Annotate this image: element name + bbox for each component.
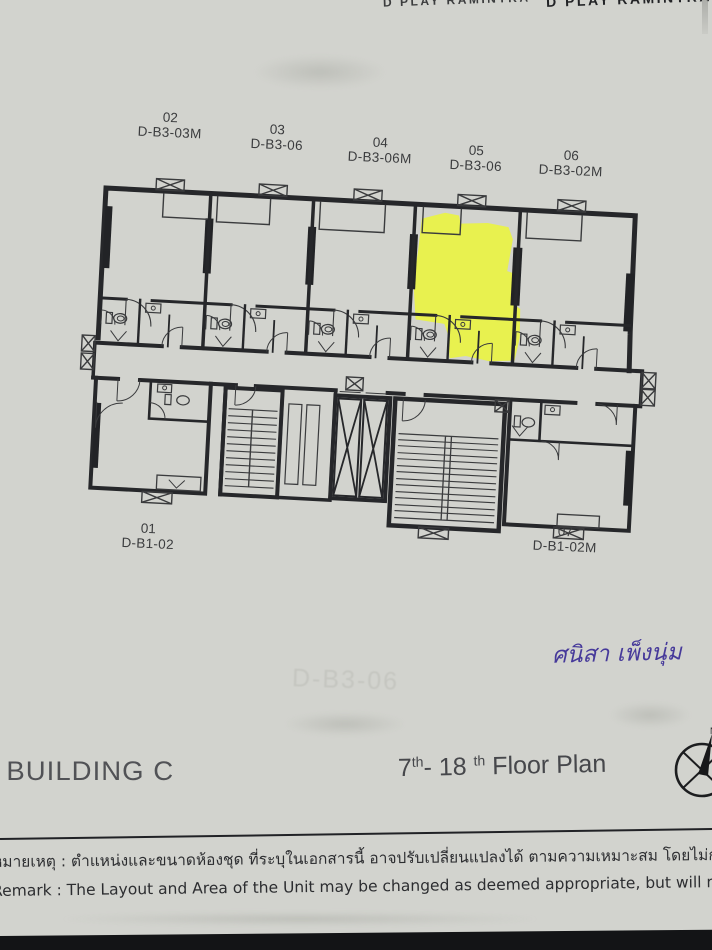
corridor [93, 323, 643, 407]
staircase-2 [389, 398, 505, 531]
bath-unit-03 [205, 303, 275, 351]
unit-label-03: 03 D-B3-06 [228, 120, 325, 154]
unit-label-05: 05 D-B3-06 [427, 141, 524, 175]
bath-unit-06 [514, 320, 584, 368]
bottom-black-bar [0, 930, 712, 950]
unit-label-02: 02 D-B3-03M [121, 108, 218, 142]
unit-07 [504, 399, 636, 530]
bath-unit-02 [100, 298, 170, 346]
photographed-floor-plan-page: D PLAY RAMINTRA D PLAY RAMINTRA [0, 0, 712, 950]
handwritten-name: ศนิสา เพ็งนุ่ม [552, 634, 683, 673]
brand-text-right: D PLAY RAMINTRA [546, 0, 712, 10]
unit-01 [90, 378, 226, 495]
building-title: BUILDING C [6, 756, 174, 787]
bath-unit-04 [308, 309, 378, 357]
ghost-area-smudge [285, 712, 405, 736]
north-compass-icon: N [662, 726, 712, 804]
plan-rotated-group [73, 175, 665, 550]
outer-wall-top [98, 188, 637, 371]
paper-edge-shadow [702, 0, 708, 34]
remark-thai: หมายเหตุ : ตำแหน่งและขนาดห้องชุด ที่ระบุ… [0, 839, 712, 874]
floor-plan-drawing [70, 160, 676, 562]
remark-divider-line [0, 828, 712, 840]
watermark-smudge [255, 55, 385, 89]
brand-text-left: D PLAY RAMINTRA [383, 0, 531, 10]
unit-label-07: 07 D-B1-02M [516, 522, 613, 556]
elevator-shafts [330, 391, 391, 501]
remark-english: Remark : The Layout and Area of the Unit… [0, 870, 712, 900]
unit-label-04: 04 D-B3-06M [331, 133, 428, 167]
staircase-1 [220, 385, 283, 498]
shaft-room [277, 391, 336, 501]
unit-label-01: 01 D-B1-02 [99, 519, 196, 553]
ghost-right-smudge [610, 702, 690, 728]
faint-third-line [60, 912, 540, 926]
unit-05-highlight [410, 211, 526, 363]
ghost-unit-code: D-B3-06 [292, 664, 400, 697]
floor-plan-title: 7th- 18 th Floor Plan [398, 750, 607, 783]
unit-label-06: 06 D-B3-02M [522, 146, 619, 180]
bath-band [99, 298, 630, 352]
